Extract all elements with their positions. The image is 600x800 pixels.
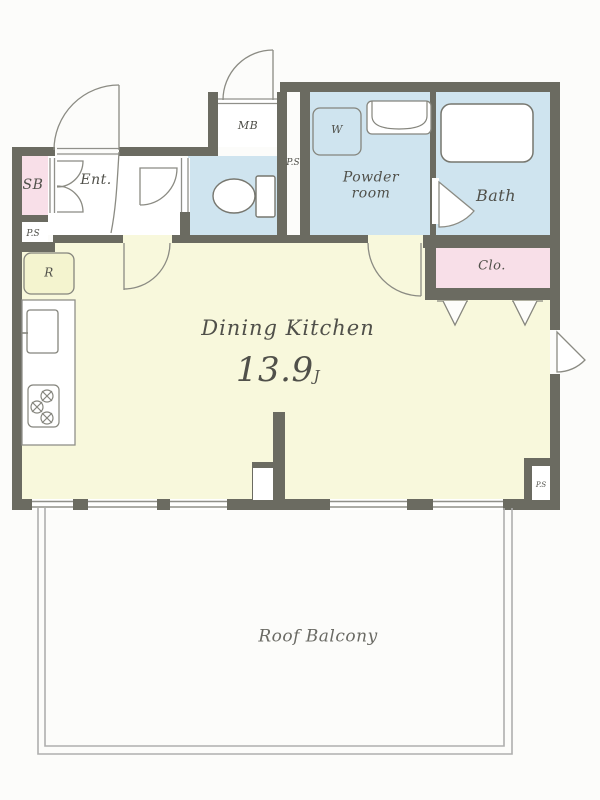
- wall-powder-left: [300, 92, 310, 243]
- roof-balcony-label: Roof Balcony: [258, 627, 377, 646]
- floor-plan-drawing: [0, 0, 600, 800]
- dining-kitchen-area-value: 13.9: [236, 350, 314, 390]
- wall-toilet-left-lower: [180, 212, 190, 243]
- stub-box: [253, 468, 273, 500]
- meter-box-label: MB: [238, 120, 258, 132]
- kitchen-counter: [21, 300, 75, 445]
- window-strip-3: [170, 499, 227, 510]
- powder-room-label-line2: room: [343, 186, 399, 202]
- wall-bottom-3: [157, 499, 170, 510]
- entrance-label: Ent.: [80, 173, 111, 189]
- wall-below-ps: [12, 242, 55, 252]
- bathtub: [441, 104, 533, 162]
- window-strip-4: [330, 499, 407, 510]
- wall-right: [550, 82, 560, 510]
- closet-label: Clo.: [478, 260, 506, 275]
- bath-label: Bath: [476, 187, 516, 205]
- wall-bottom-5: [407, 499, 433, 510]
- powder-room-label-line1: Powder: [343, 170, 399, 186]
- shoe-box-label: SB: [23, 178, 44, 194]
- dining-kitchen-area: 13.9J: [236, 351, 320, 389]
- pipe-space-shaft-label: P.S: [286, 158, 299, 168]
- wall-ps-alcove-top: [524, 458, 551, 466]
- wall-bottom-1: [12, 499, 32, 510]
- powder-dk-door-opening: [368, 235, 423, 243]
- window-strip-5: [433, 499, 503, 510]
- wall-stub-box-top: [252, 462, 273, 468]
- pipe-space-bottom-label: P.S: [536, 482, 546, 490]
- wall-closet-top: [423, 235, 550, 248]
- side-door-swing: [557, 332, 585, 372]
- refrigerator-label: R: [44, 266, 54, 279]
- wall-dk-top-b: [172, 235, 368, 243]
- wall-bottom-2: [73, 499, 88, 510]
- wall-bottom-4: [227, 499, 330, 510]
- kitchen-sink: [21, 310, 58, 353]
- meter-box-door-swing: [223, 50, 273, 100]
- wall-left: [12, 147, 22, 510]
- floor-plan: SB P.S Ent. MB P.S W Powder room Bath Cl…: [0, 0, 600, 800]
- washing-machine-label: W: [331, 124, 343, 136]
- powder-room-label: Powder room: [343, 170, 399, 201]
- bath-door-opening: [432, 178, 439, 224]
- dining-kitchen-label: Dining Kitchen: [201, 317, 375, 341]
- wall-top-right: [280, 82, 560, 92]
- wall-stub: [273, 412, 285, 507]
- wall-meter-box-left: [208, 92, 218, 156]
- wall-dk-top-a: [53, 235, 123, 243]
- wall-sb-separator: [12, 215, 48, 222]
- pipe-space-left-label: P.S: [26, 229, 39, 239]
- wall-closet-bottom: [425, 288, 550, 300]
- dining-kitchen-area-unit: J: [314, 367, 321, 385]
- toilet: [213, 176, 275, 217]
- hall-dk-door-opening: [123, 235, 172, 243]
- powder-sink: [367, 101, 431, 134]
- window-strip-2: [88, 499, 157, 510]
